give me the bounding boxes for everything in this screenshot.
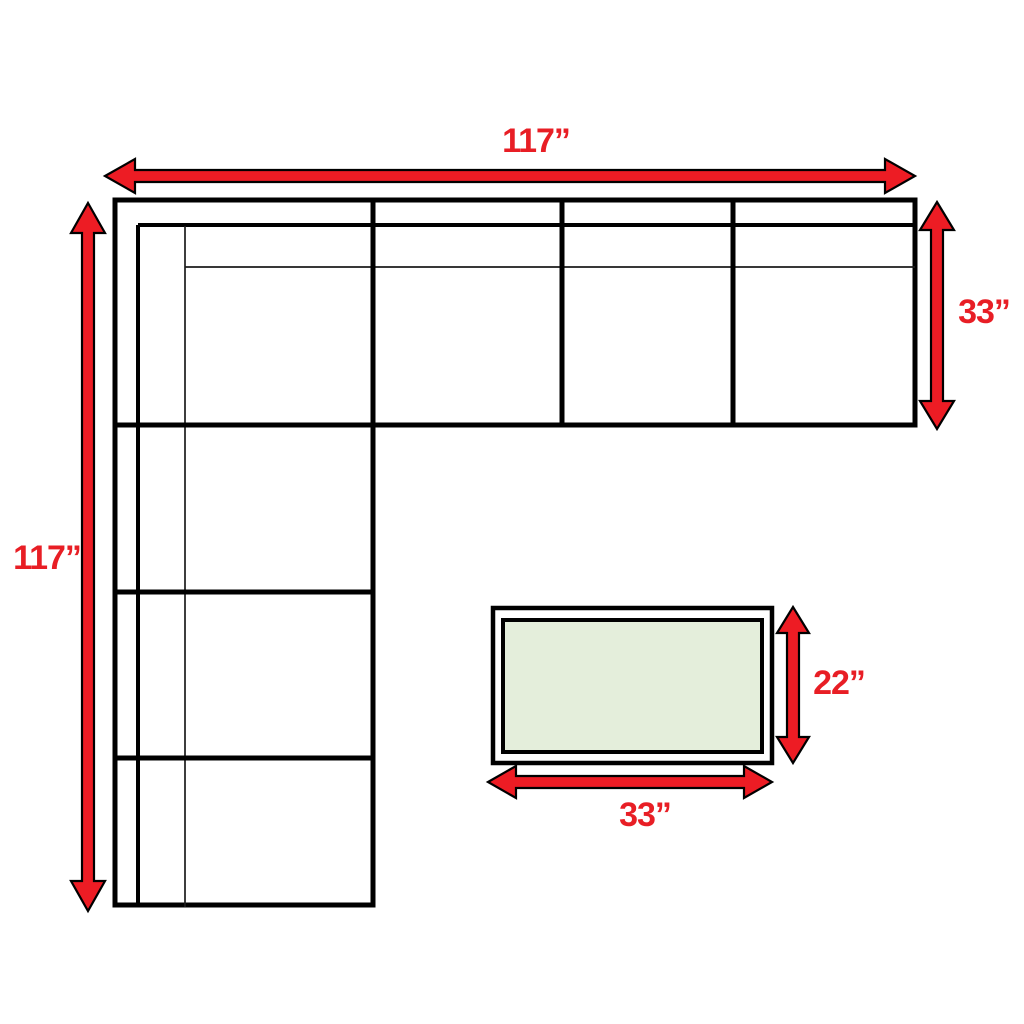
sofa-section-depth-label: 33” xyxy=(958,295,1010,329)
ottoman-top-surface xyxy=(503,620,762,752)
depth-dimension-arrow xyxy=(920,202,954,429)
ottoman-depth-dimension-arrow xyxy=(777,607,809,763)
ottoman-width-dimension-arrow xyxy=(488,766,772,798)
ottoman xyxy=(493,608,772,763)
sofa-outer-edge xyxy=(115,200,915,905)
ottoman-depth-label: 22” xyxy=(813,666,865,700)
sofa-height-label: 117” xyxy=(13,541,81,575)
width-dimension-arrow xyxy=(105,159,915,193)
sofa-width-label: 117” xyxy=(502,124,570,158)
sectional-sofa-outline xyxy=(115,200,915,907)
ottoman-width-label: 33” xyxy=(619,798,671,832)
furniture-dimension-diagram: 117” 117” 33” 22” 33” xyxy=(0,0,1024,1024)
